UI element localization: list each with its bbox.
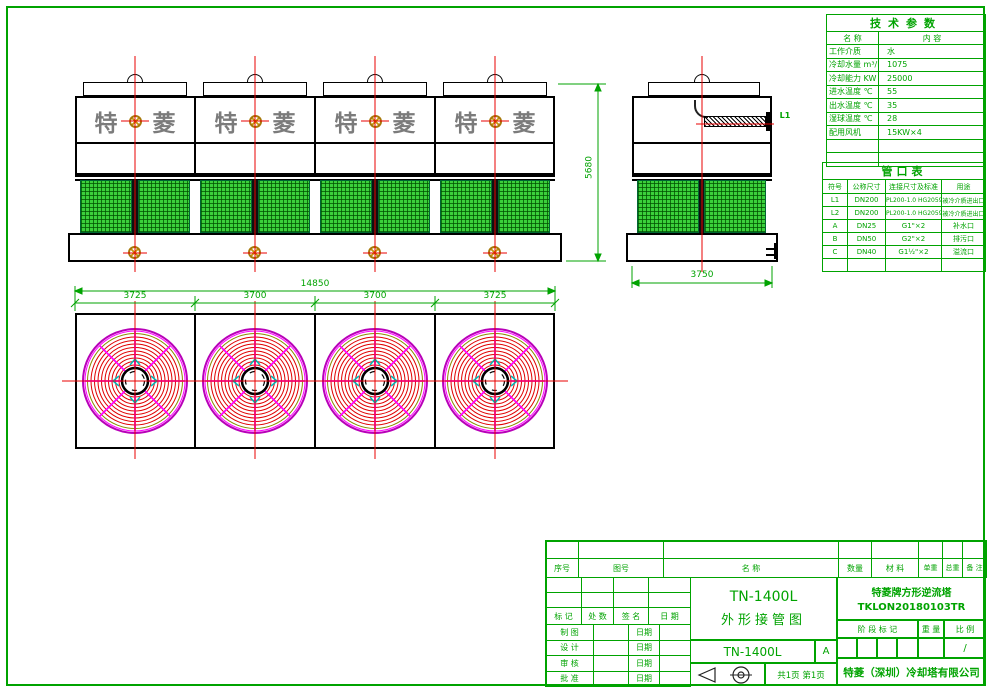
param-value: 水: [879, 45, 986, 59]
pipe-cell: [942, 259, 986, 272]
col-header: 连接尺寸及标准: [886, 180, 942, 194]
col-header: 标 记: [546, 608, 582, 625]
weight-header: 重 量: [918, 620, 944, 638]
louver-panel: [704, 180, 766, 233]
table-row: L2DN200PL200-1.0 HG20593被冷介质进出口: [823, 207, 986, 220]
table-row: 管口表: [823, 163, 986, 180]
stage-value-cell: [857, 638, 877, 658]
page-info-cell: 共1页 第1页: [765, 663, 837, 686]
pipe-cell: [848, 259, 886, 272]
logo-char: 菱: [393, 104, 416, 138]
brand-logo: 特 菱: [195, 104, 315, 138]
pipe-flange: [766, 112, 770, 131]
louver-panel: [320, 180, 372, 233]
col-header: 总重: [943, 559, 963, 578]
logo-char: 菱: [273, 104, 296, 138]
pipe-cell: DN25: [848, 220, 886, 233]
param-value: 15KW×4: [879, 126, 986, 140]
stage-value-cell: [877, 638, 897, 658]
outlet-stub: [766, 254, 774, 256]
date-label: 日期: [629, 640, 660, 656]
target-mark-icon: [248, 246, 261, 259]
table-row: L1DN200PL200-1.0 HG20593被冷介质进出口: [823, 194, 986, 207]
pipe-cell: DN40: [848, 246, 886, 259]
pipe-cell: [823, 259, 848, 272]
col-header: 符号: [823, 180, 848, 194]
table-row: 湿球温度 ℃28: [827, 112, 986, 126]
cell-divider: [314, 313, 316, 449]
logo-char: 菱: [513, 104, 536, 138]
param-name: [827, 139, 879, 153]
brand-logo: 特 菱: [435, 104, 555, 138]
param-value: 35: [879, 99, 986, 113]
panel-seam-line: [75, 142, 555, 144]
table-row: 标 记 处 数 签 名 日 期: [546, 608, 691, 625]
projection-symbol-icon: [693, 665, 763, 685]
sign-label: 批 准: [546, 671, 594, 687]
model-cell: TN-1400L: [690, 640, 815, 663]
param-value: [879, 139, 986, 153]
pipe-cell: 被冷介质进出口: [942, 207, 986, 220]
pipe-cell: DN50: [848, 233, 886, 246]
col-header: 用途: [942, 180, 986, 194]
col-header: 内 容: [879, 32, 986, 45]
dim-segment-label: 3700: [231, 292, 279, 301]
outlet-stub: [766, 248, 774, 250]
water-basin: [68, 233, 562, 262]
sign-label: 设 计: [546, 640, 594, 656]
col-header: 材 料: [872, 559, 919, 578]
outlet-flange: [774, 243, 778, 259]
col-header: 公称尺寸: [848, 180, 886, 194]
water-basin-side: [626, 233, 778, 262]
fan-deck-rail: [83, 82, 187, 96]
param-value: 55: [879, 85, 986, 99]
stage-header: 阶 段 标 记: [837, 620, 918, 638]
pipe-cell: DN200: [848, 194, 886, 207]
fan-deck-rail: [203, 82, 307, 96]
param-name: 湿球温度 ℃: [827, 112, 879, 126]
col-header: 单重: [919, 559, 943, 578]
dim-segment-label: 3725: [471, 292, 519, 301]
revision-cell: A: [815, 640, 837, 663]
table-row: 批 准日期: [546, 671, 691, 687]
target-mark-icon: [368, 246, 381, 259]
drawing-number: TKLON20180103TR: [858, 602, 966, 613]
pipe-cell: G1½"×2: [886, 246, 942, 259]
logo-char: 特: [455, 104, 478, 138]
pipe-cell: G2"×2: [886, 233, 942, 246]
table-row: 序号 图号 名 称 数量 材 料 单重 总重 备 注: [546, 559, 987, 578]
pipe-cell: 补水口: [942, 220, 986, 233]
dim-segment-label: 3700: [351, 292, 399, 301]
param-value: 25000: [879, 72, 986, 86]
table-row: 符号 公称尺寸 连接尺寸及标准 用途: [823, 180, 986, 194]
logo-char: 菱: [153, 104, 176, 138]
drawing-title-model: TN-1400L: [730, 589, 798, 605]
sign-label: 制 图: [546, 625, 594, 641]
cell-divider: [194, 313, 196, 449]
louver-panel: [378, 180, 430, 233]
revision-area: 标 记 处 数 签 名 日 期: [545, 577, 691, 625]
target-mark-icon: [488, 246, 501, 259]
louver-panel: [258, 180, 310, 233]
projection-cell: [690, 663, 765, 686]
col-header: 签 名: [614, 608, 649, 625]
table-row: 配用风机15KW×4: [827, 126, 986, 140]
param-name: 冷却能力 KW: [827, 72, 879, 86]
table-row: 工作介质水: [827, 45, 986, 59]
pipe-cell: L2: [823, 207, 848, 220]
table-row: 名 称 内 容: [827, 32, 986, 45]
table-row: [546, 541, 987, 559]
col-header: 图号: [579, 559, 664, 578]
param-value: 1075: [879, 58, 986, 72]
pipe-cell: DN200: [848, 207, 886, 220]
target-mark-icon: [128, 246, 141, 259]
seam-line: [75, 175, 555, 177]
tech-table-title: 技术参数: [827, 15, 986, 32]
pipe-label: L1: [777, 112, 793, 120]
logo-char: 特: [95, 104, 118, 138]
table-row: CDN40G1½"×2溢流口: [823, 246, 986, 259]
cad-drawing-sheet: { "colors":{"line_green":"#00a300","cent…: [0, 0, 990, 693]
pipe-cell: 溢流口: [942, 246, 986, 259]
param-value: 28: [879, 112, 986, 126]
col-header: 数量: [839, 559, 872, 578]
louver-panel: [637, 180, 699, 233]
scale-value-cell: /: [944, 638, 986, 658]
dim-total-label: 14850: [287, 280, 343, 289]
table-row: [827, 139, 986, 153]
table-row: 审 核日期: [546, 656, 691, 672]
louver-panel: [498, 180, 550, 233]
param-name: 冷却水量 m³/h: [827, 58, 879, 72]
date-label: 日期: [629, 671, 660, 687]
param-name: 进水温度 ℃: [827, 85, 879, 99]
seam-line: [632, 175, 772, 177]
tech-parameters-table: 技术参数 名 称 内 容 工作介质水 冷却水量 m³/h1075 冷却能力 KW…: [826, 14, 986, 167]
param-name: 出水温度 ℃: [827, 99, 879, 113]
panel-seam-line: [632, 142, 772, 144]
louver-panel: [80, 180, 132, 233]
louver-panel: [138, 180, 190, 233]
brand-logo: 特 菱: [315, 104, 435, 138]
table-row: 冷却能力 KW25000: [827, 72, 986, 86]
col-header: 备 注: [963, 559, 987, 578]
date-label: 日期: [629, 625, 660, 641]
col-header: 处 数: [582, 608, 614, 625]
target-mark-icon: [249, 115, 262, 128]
table-row: 设 计日期: [546, 640, 691, 656]
fan-deck-rail: [443, 82, 547, 96]
param-name: 工作介质: [827, 45, 879, 59]
pipe-cell: G1"×2: [886, 220, 942, 233]
fan-deck-rail: [648, 82, 760, 96]
pipe-cell: [886, 259, 942, 272]
pipe-cell: 被冷介质进出口: [942, 194, 986, 207]
pipe-cell: PL200-1.0 HG20593: [886, 194, 942, 207]
pipe-table: 管口表 符号 公称尺寸 连接尺寸及标准 用途 L1DN200PL200-1.0 …: [822, 162, 986, 272]
product-name: 特菱牌方形逆流塔: [872, 584, 952, 599]
dim-height-label: 5680: [586, 148, 595, 188]
fan-deck-rail: [323, 82, 427, 96]
table-row: BDN50G2"×2排污口: [823, 233, 986, 246]
scale-header: 比 例: [944, 620, 986, 638]
pipe-cell: L1: [823, 194, 848, 207]
col-header: 名 称: [827, 32, 879, 45]
pipe-cell: 排污口: [942, 233, 986, 246]
cell-divider: [434, 313, 436, 449]
weight-value-cell: [918, 638, 944, 658]
target-mark-icon: [369, 115, 382, 128]
table-row: ADN25G1"×2补水口: [823, 220, 986, 233]
table-row: 制 图日期: [546, 625, 691, 641]
table-row: 出水温度 ℃35: [827, 99, 986, 113]
table-row: [823, 259, 986, 272]
pipe-cell: A: [823, 220, 848, 233]
sign-label: 审 核: [546, 656, 594, 672]
pipe-table-title: 管口表: [823, 163, 986, 180]
table-row: 技术参数: [827, 15, 986, 32]
logo-char: 特: [335, 104, 358, 138]
brand-logo: 特 菱: [75, 104, 195, 138]
table-row: 冷却水量 m³/h1075: [827, 58, 986, 72]
table-row: [546, 578, 691, 593]
col-header: 序号: [546, 559, 579, 578]
col-header: 日 期: [649, 608, 691, 625]
col-header: 名 称: [664, 559, 839, 578]
table-row: 进水温度 ℃55: [827, 85, 986, 99]
product-cell: 特菱牌方形逆流塔 TKLON20180103TR: [837, 577, 986, 620]
logo-char: 特: [215, 104, 238, 138]
louver-panel: [440, 180, 492, 233]
spray-pipe: [704, 116, 766, 127]
dim-side-width-label: 3750: [678, 271, 726, 280]
pipe-cell: C: [823, 246, 848, 259]
pipe-cell: PL200-1.0 HG20593: [886, 207, 942, 220]
company-cell: 特菱（深圳）冷却塔有限公司: [837, 658, 986, 686]
stage-value-cell: [897, 638, 918, 658]
stage-value-cell: [837, 638, 857, 658]
target-mark-icon: [129, 115, 142, 128]
drawing-title-cell: TN-1400L 外形接管图: [690, 577, 837, 640]
target-mark-icon: [489, 115, 502, 128]
parts-list: 序号 图号 名 称 数量 材 料 单重 总重 备 注: [545, 540, 987, 578]
table-row: [546, 593, 691, 608]
signature-rows: 制 图日期 设 计日期 审 核日期 批 准日期: [545, 624, 691, 687]
param-name: 配用风机: [827, 126, 879, 140]
louver-panel: [200, 180, 252, 233]
pipe-cell: B: [823, 233, 848, 246]
date-label: 日期: [629, 656, 660, 672]
drawing-title-type: 外形接管图: [721, 609, 806, 628]
dim-segment-label: 3725: [111, 292, 159, 301]
